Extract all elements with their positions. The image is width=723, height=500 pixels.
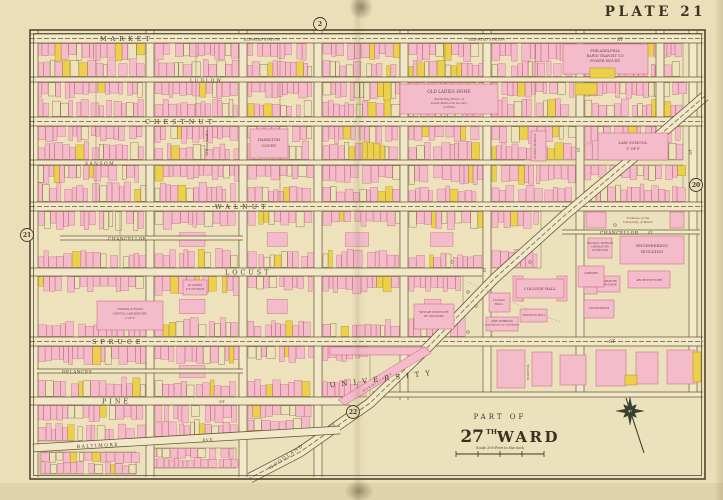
lot [291,62,296,76]
lot [304,322,311,336]
plate-ref-number: 22 [349,409,357,416]
lot [381,212,387,222]
lot [211,406,215,421]
lot [169,347,174,362]
lot [417,63,424,76]
lot [52,430,56,441]
lot [677,188,685,201]
lot [546,127,553,142]
lot [370,83,377,99]
lot [38,127,45,140]
lot [451,166,459,182]
lot [626,83,632,99]
lot [218,166,223,177]
lot [213,212,220,224]
lot [522,44,530,62]
lot [123,145,128,159]
lot [338,146,344,160]
lot [104,145,110,159]
lot [266,325,272,336]
lot [506,186,514,202]
lot [323,166,329,181]
lot [169,422,177,436]
lot [262,347,267,357]
lot [265,83,272,97]
lot [252,62,259,77]
street-name: CHANCELLOR [600,231,639,236]
lot [163,277,171,291]
street-market: MARKETST [30,34,703,43]
lot [615,104,621,116]
architecture-building-label: ARCHITECTURE [635,278,662,282]
lot [60,166,65,183]
lot [375,251,379,267]
lot [77,102,81,116]
lot [288,83,294,93]
lot [387,212,395,226]
lot [96,127,100,136]
lot [224,459,231,467]
lot [457,63,461,76]
lot [289,382,294,396]
lot [223,406,231,418]
lot [159,63,167,76]
lot [167,63,174,76]
lot [116,406,124,419]
lot [49,257,56,267]
lot [169,460,174,467]
lot [370,44,374,60]
lot [395,255,399,267]
lot [323,277,329,291]
lot [198,44,204,56]
lot [442,143,450,160]
lot [186,449,190,456]
lot [175,458,179,467]
lot [353,325,357,336]
lot [83,166,89,180]
street-pine: PINEST [30,397,350,405]
lot [548,149,555,160]
lot [119,347,127,365]
lot [41,462,45,474]
lot [83,83,89,94]
lot [459,141,467,159]
lot [329,127,335,138]
lot [678,166,686,176]
lot [252,83,260,92]
atlas-page: MARKETSTLUDLOWCHESTNUTSANSOMWALNUTCHANCE… [0,0,723,500]
lot [492,147,496,159]
lot [155,406,162,422]
lot [538,63,545,76]
lot [205,44,210,54]
lot [524,212,532,229]
lot [461,127,466,140]
lot [194,458,200,468]
lot [543,83,547,94]
lot [621,99,628,116]
lot [385,44,393,57]
city-block [154,126,239,160]
lot [178,185,186,201]
lot [214,386,220,396]
trustees-note-building [586,212,606,228]
lot [69,127,73,141]
lot [376,127,381,145]
lot [549,83,557,94]
lot [55,142,63,159]
lot [323,212,331,226]
lot [536,44,541,62]
plate-ref-21: 21 [21,229,34,242]
lot [278,191,283,201]
lot [380,44,386,54]
lot [371,166,378,183]
lot [373,212,380,222]
logan-hall: LOGANHALL [489,293,510,312]
lot [456,277,461,291]
lot [275,255,282,267]
map-canvas: MARKETSTLUDLOWCHESTNUTSANSOMWALNUTCHANCE… [0,0,723,500]
lot [38,277,43,286]
lot [349,104,354,116]
lot [199,166,203,175]
lot [422,127,428,137]
lot [607,83,615,93]
lot [137,406,143,419]
lot [345,189,353,201]
lot [53,326,61,336]
lot [506,44,511,56]
plate-title: PLATE 21 [605,4,706,20]
lot [271,44,278,57]
lot [44,277,50,291]
lot [351,127,355,140]
lot [345,166,350,183]
lot [248,321,254,336]
lot [69,44,77,55]
lot [73,347,78,359]
lot [123,466,129,473]
lot [38,427,46,440]
lot [67,277,74,292]
lot [339,212,343,222]
lot [89,406,94,422]
lot [264,212,269,223]
street-chestnut: CHESTNUT [30,117,703,126]
lot [166,185,170,202]
lot [127,166,135,177]
lot [643,83,648,98]
lot [174,406,178,419]
lot [167,144,171,159]
lot [416,188,420,201]
lot [130,127,137,139]
mid-block-building [267,233,287,247]
city-block [37,43,146,77]
street-name: MARKET [100,35,154,43]
lot [679,83,687,94]
lot [293,252,299,267]
lot [592,104,598,117]
lot [118,424,126,440]
lot [647,105,651,117]
lot [112,183,119,201]
lot [472,192,476,201]
lot [187,461,194,468]
hospital-building [667,350,695,384]
lot [529,166,534,184]
lot [373,277,377,288]
lot [266,406,272,417]
lot [222,189,226,201]
lot [182,127,187,143]
lot [217,83,222,99]
lot [502,83,508,95]
lot [436,212,441,229]
lot [453,257,457,267]
lot [94,44,101,61]
lot [49,166,53,177]
lot [64,254,72,268]
lot [549,44,556,59]
lot [302,256,308,267]
lot [220,144,225,159]
lot [409,191,415,202]
lot [508,83,513,96]
lot [329,277,333,288]
lot [201,102,205,116]
lot [386,187,393,201]
lot [379,251,386,268]
lot [676,144,683,159]
lot [377,63,383,76]
lot [473,166,477,185]
lot [519,190,526,201]
street-band [146,30,154,477]
lot [77,127,81,141]
lot [161,127,166,140]
lot [378,192,385,202]
lot [57,406,63,420]
lot [219,460,223,468]
lot [119,127,125,141]
lot [659,189,665,201]
lot [181,103,187,116]
lot [180,148,186,159]
lot [294,83,299,94]
lot [169,322,176,336]
street-name-suffix: ST [648,231,653,235]
street-name: DELANCEY [62,370,92,375]
lot [417,44,422,61]
lot [357,325,365,336]
lot [136,347,141,364]
lot [173,166,180,176]
lot [76,145,84,160]
plate-ref-2: 2 [314,18,327,31]
lot [433,147,441,159]
lot [229,449,233,459]
lot [354,192,360,201]
lot [376,104,384,117]
lot [94,166,101,181]
lot [119,83,123,94]
lot [248,406,253,419]
lot [229,347,234,363]
lot [71,384,78,396]
lot [651,64,655,76]
lot [561,166,567,179]
lot [616,83,620,98]
lot [248,103,254,116]
hospital-building [497,350,525,388]
small-annotation: PENNSYLVANIA [205,130,209,156]
lot [173,83,179,94]
lot [585,127,591,143]
lot [60,347,64,360]
lot [127,384,133,396]
lot [468,63,472,76]
lot [302,44,306,61]
lot [259,212,264,225]
lot [220,212,227,226]
lot [205,406,210,422]
street-walnut: WALNUT [30,202,703,211]
lot [421,277,426,288]
lot [426,277,431,292]
lot [272,83,277,98]
lot [210,380,214,396]
lot [233,105,237,116]
harrison-chemistry-lab-label: LABORATORY OF CHEMISTRY [485,324,520,327]
lot [106,453,114,462]
lot [116,277,120,292]
plate-ref-number: 2 [318,21,322,28]
evans-dental-laboratory-label: THOMAS W EVANS [117,307,143,311]
scale-note: Scale 200 Feet to the Inch [476,446,525,450]
mid-block-building [345,233,368,247]
lot [135,189,141,201]
lot [190,318,198,337]
houston-hall-label: HOUSTON HALL [523,313,546,317]
lot [353,277,361,294]
lot [201,459,208,467]
houston-hall: HOUSTON HALL [520,309,547,322]
lot [344,212,351,222]
hospital-building [596,350,626,386]
lot [260,83,265,92]
st-marys-church-label: P E CHURCH [186,287,205,291]
lot [91,381,99,397]
lot [170,449,177,458]
small-annotation: ELEVATED STATION [468,38,506,42]
lot [376,325,380,336]
lot [46,423,51,440]
city-block [408,165,483,202]
lot [287,106,292,116]
lot [96,63,103,76]
lot [38,212,44,226]
lot [100,127,106,141]
lot [283,83,287,95]
street-unnamed [372,392,703,397]
lot [409,258,416,267]
lot [391,64,396,76]
trustees-note-building [670,212,684,228]
lot [434,166,442,178]
hamilton-court-label: HAMILTON [258,137,281,142]
lot [323,127,329,142]
lot [213,148,219,160]
lot [89,212,95,225]
lot [101,453,106,463]
lot [182,406,188,423]
lot [296,347,305,359]
lot [304,212,312,223]
lot [492,166,496,182]
lot [323,324,330,336]
plate-ref-22: 22 [347,406,360,419]
lot [108,60,116,76]
lot [379,166,385,177]
lot [57,183,61,201]
lot [79,382,83,396]
lot [188,104,195,116]
lot [519,166,525,185]
lot [328,250,332,267]
evans-dental-laboratory-building [97,301,163,330]
lot [380,146,385,159]
lot [72,252,80,268]
lot [271,422,279,431]
lot [644,166,649,180]
lot [216,249,223,268]
lot [61,381,66,396]
hospital-building [532,352,552,386]
lot [384,83,391,101]
lot [169,166,173,177]
lot [162,422,168,437]
lot [336,83,341,98]
city-block [154,405,239,437]
lot [266,166,271,177]
lot [193,212,197,227]
lot [155,105,163,117]
lot [336,166,345,182]
lot [163,212,171,230]
lot [525,166,529,183]
lot [308,277,312,292]
lot [139,147,144,159]
lot [65,189,72,201]
street-name-suffix: ST [219,399,225,404]
lot [545,190,553,201]
lot [518,83,525,96]
lot [71,463,77,474]
lot [284,277,292,290]
lot [110,83,119,93]
lot [212,187,217,201]
lot [171,185,178,201]
lot [106,462,111,473]
lot [557,44,561,60]
lot [57,463,63,473]
lot [84,347,92,365]
lot [199,182,207,201]
street-band [30,397,350,405]
